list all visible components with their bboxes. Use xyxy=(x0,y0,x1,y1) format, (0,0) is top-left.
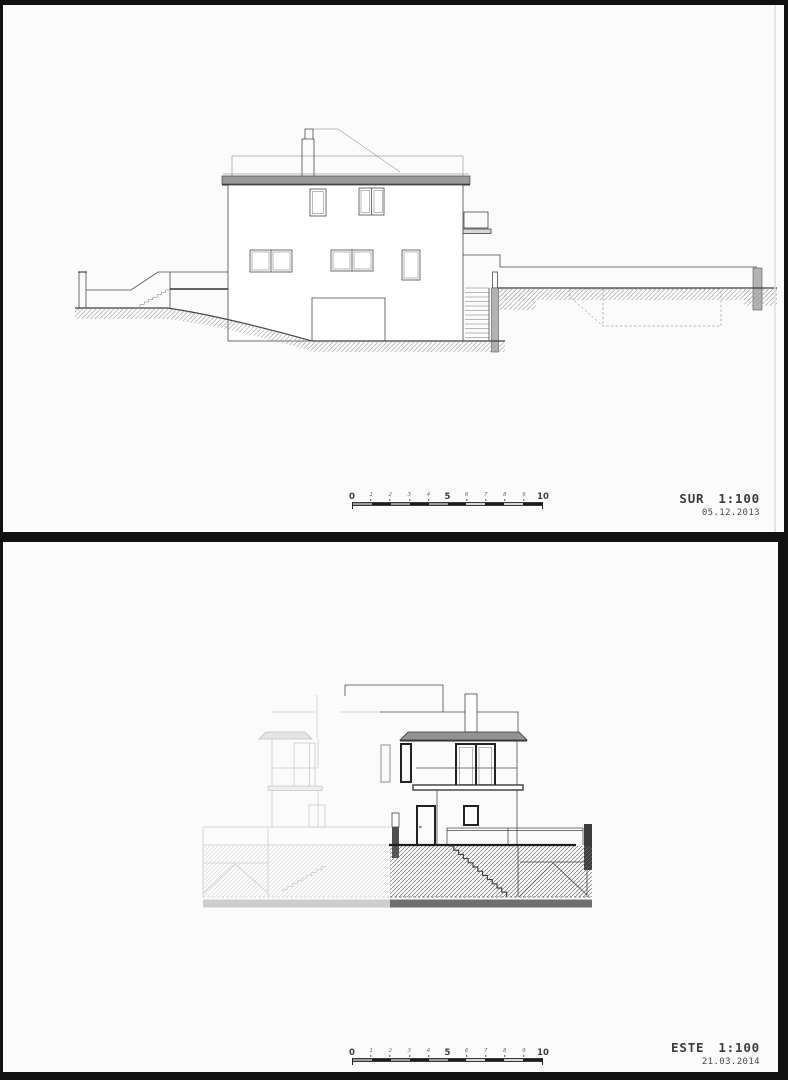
scale-tick: 1 xyxy=(369,492,373,501)
scale-tick: 0 xyxy=(349,1048,355,1058)
scale-tick: 8 xyxy=(503,492,507,501)
drawing-sheet: { "colors": { "frame": "#111111", "paper… xyxy=(0,0,788,1080)
elevation-panel-este: 0 1 2 3 4 5 6 7 8 9 10 ESTE1:100 21.03.2… xyxy=(3,542,778,1072)
deck-ground-hatch xyxy=(498,288,777,310)
faded-ground-band xyxy=(203,900,390,908)
drawing-date: 21.03.2014 xyxy=(671,1057,760,1067)
scale-tick: 9 xyxy=(522,492,526,501)
view-name: ESTE xyxy=(671,1040,704,1055)
scale-tick: 4 xyxy=(427,492,431,501)
scale-tick: 9 xyxy=(522,1048,526,1057)
scale-tick: 7 xyxy=(484,1048,488,1057)
scale-bar-segments xyxy=(352,1058,543,1062)
scale-tick: 8 xyxy=(503,1048,507,1057)
drawing-scale: 1:100 xyxy=(718,491,760,506)
drawing-date: 05.12.2013 xyxy=(679,508,760,518)
scale-tick: 2 xyxy=(388,492,392,501)
frame-top xyxy=(0,0,788,5)
scale-tick: 10 xyxy=(537,492,549,502)
balcony xyxy=(463,212,491,234)
title-block-sur: SUR1:100 05.12.2013 xyxy=(679,491,760,518)
drawing-title: SUR1:100 xyxy=(679,491,760,506)
exterior-stair xyxy=(465,288,489,341)
title-block-este: ESTE1:100 21.03.2014 xyxy=(671,1040,760,1067)
faded-ground-hatch xyxy=(203,846,390,897)
este-elevation-drawing xyxy=(3,542,778,1072)
drawing-title: ESTE1:100 xyxy=(671,1040,760,1055)
narrow-window xyxy=(401,744,411,782)
faded-left-building xyxy=(203,695,390,908)
scale-tick: 2 xyxy=(388,1048,392,1057)
scale-tick: 0 xyxy=(349,492,355,502)
sur-elevation-drawing xyxy=(3,5,784,532)
entry-stair xyxy=(78,272,228,309)
scale-tick: 7 xyxy=(484,492,488,501)
small-window xyxy=(464,806,478,825)
entry-door xyxy=(417,806,435,845)
cornice xyxy=(222,176,470,184)
scale-bar-numbers: 0 1 2 3 4 5 6 7 8 9 10 xyxy=(352,489,543,502)
panel-divider xyxy=(0,532,788,542)
drawing-scale: 1:100 xyxy=(718,1040,760,1055)
roof-parapet xyxy=(222,129,470,185)
scale-bar-numbers: 0 1 2 3 4 5 6 7 8 9 10 xyxy=(352,1045,543,1058)
scale-bar-segments xyxy=(352,502,543,506)
scale-tick: 3 xyxy=(408,1048,412,1057)
scale-bar-sur: 0 1 2 3 4 5 6 7 8 9 10 xyxy=(352,489,543,506)
ground-band xyxy=(390,900,592,908)
frame-bottom xyxy=(0,1072,788,1080)
scale-bar-este: 0 1 2 3 4 5 6 7 8 9 10 xyxy=(352,1045,543,1062)
scale-tick: 4 xyxy=(427,1048,431,1057)
scale-tick: 5 xyxy=(445,1048,451,1058)
scale-tick: 5 xyxy=(445,492,451,502)
scale-tick: 6 xyxy=(465,1048,469,1057)
scale-tick: 6 xyxy=(465,492,469,501)
scale-tick: 10 xyxy=(537,1048,549,1058)
balcony-slab xyxy=(413,785,523,790)
view-name: SUR xyxy=(679,491,704,506)
scale-tick: 3 xyxy=(408,492,412,501)
house-body xyxy=(228,185,463,341)
scale-tick: 1 xyxy=(369,1048,373,1057)
elevation-panel-sur: 0 1 2 3 4 5 6 7 8 9 10 SUR1:100 05.12.20… xyxy=(3,5,784,532)
cornice xyxy=(400,732,527,740)
